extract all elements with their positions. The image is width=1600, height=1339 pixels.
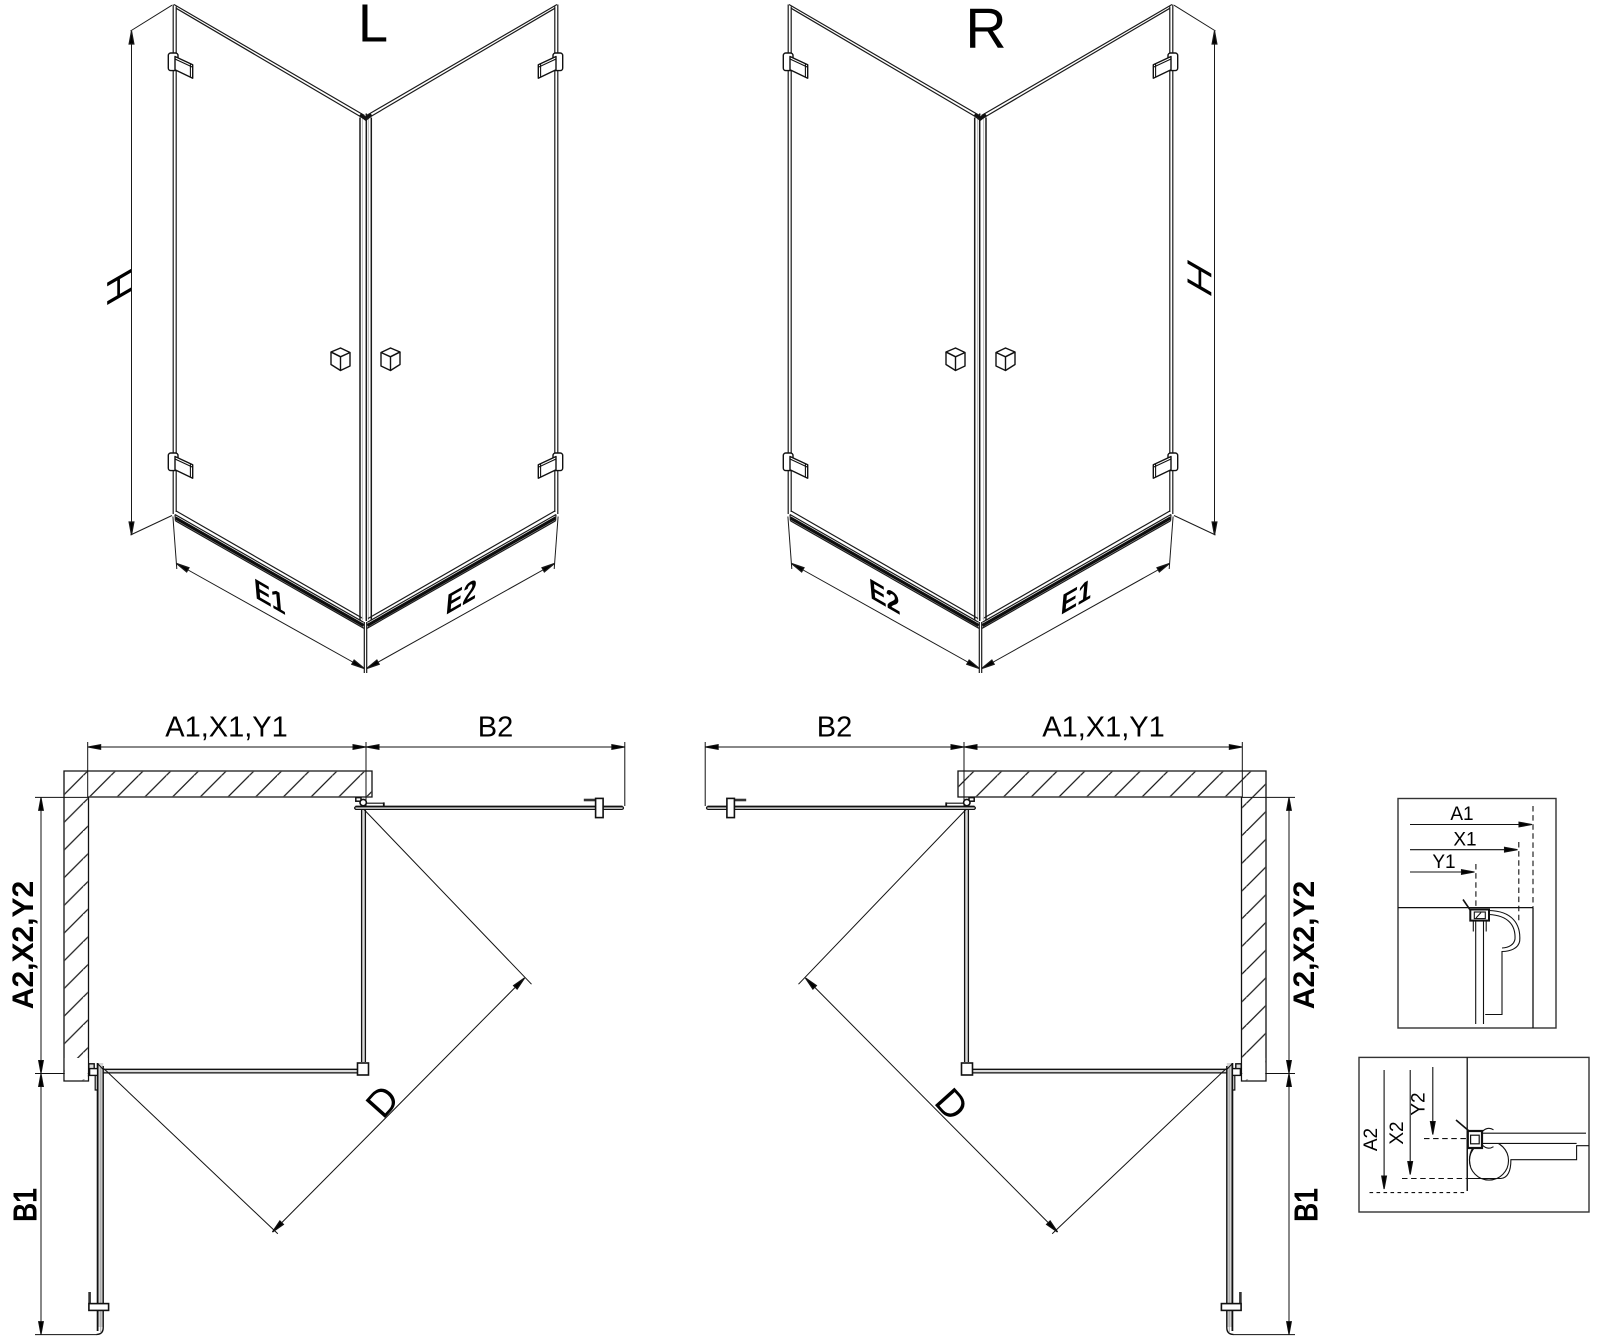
svg-text:Y1: Y1: [1432, 852, 1455, 873]
svg-text:A2,X2,Y2: A2,X2,Y2: [1288, 881, 1321, 1009]
svg-text:L: L: [358, 0, 388, 54]
svg-text:A2,X2,Y2: A2,X2,Y2: [7, 881, 40, 1009]
svg-text:B2: B2: [478, 712, 513, 744]
svg-text:B2: B2: [817, 712, 852, 744]
svg-text:X2: X2: [1387, 1121, 1408, 1144]
svg-text:A2: A2: [1361, 1128, 1382, 1151]
svg-text:A1,X1,Y1: A1,X1,Y1: [1042, 712, 1165, 744]
svg-text:A1: A1: [1450, 804, 1473, 825]
svg-text:A1,X1,Y1: A1,X1,Y1: [165, 712, 288, 744]
svg-text:Y2: Y2: [1409, 1092, 1430, 1115]
svg-text:B1: B1: [1289, 1188, 1325, 1222]
svg-text:X1: X1: [1453, 830, 1476, 851]
svg-text:R: R: [965, 0, 1006, 61]
svg-text:B1: B1: [8, 1188, 44, 1222]
